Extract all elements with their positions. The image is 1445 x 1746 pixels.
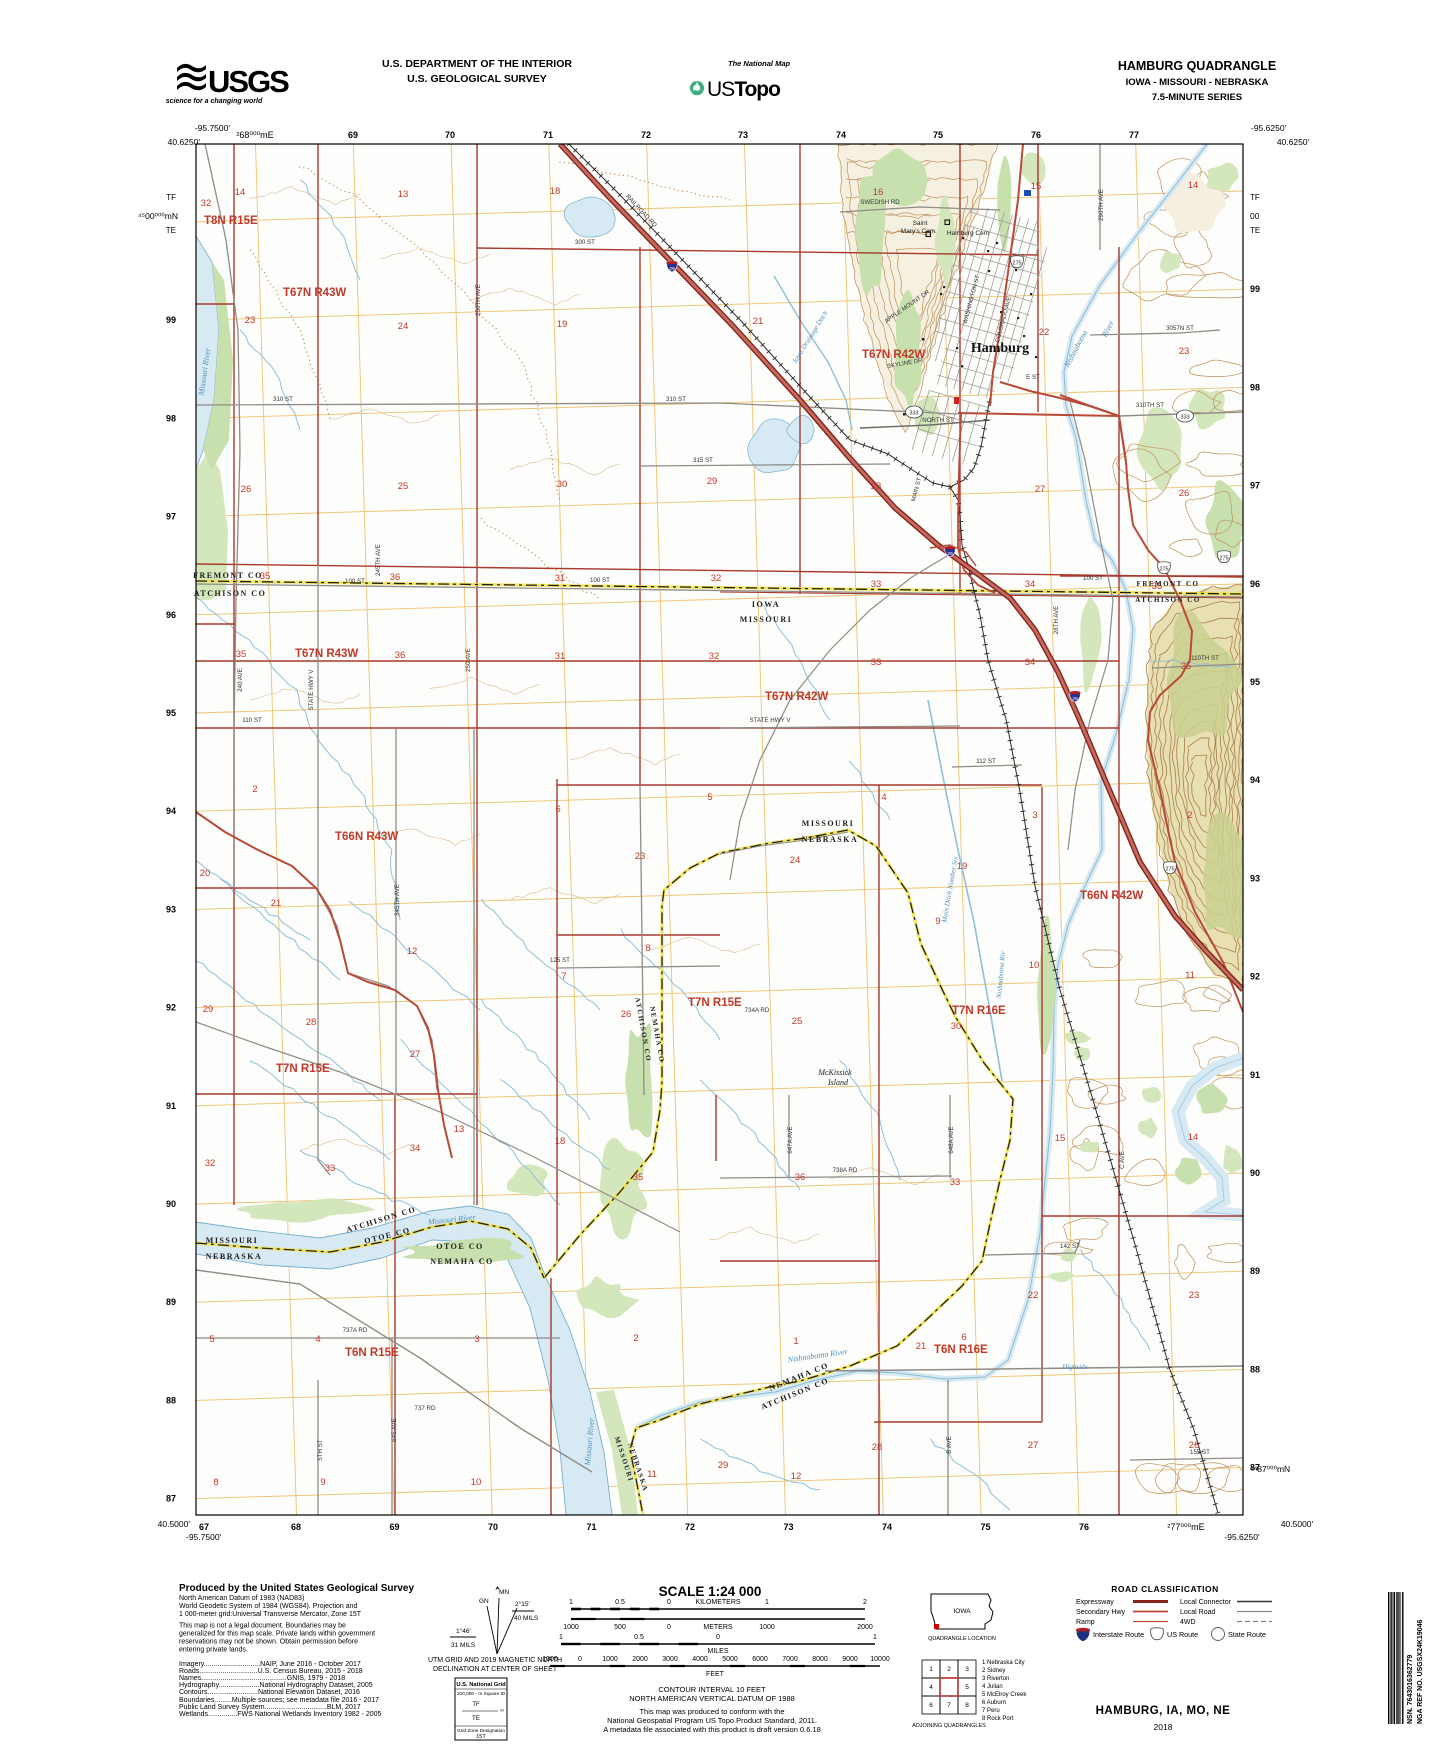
svg-text:94: 94 xyxy=(166,806,176,816)
svg-text:645 AVE: 645 AVE xyxy=(391,1418,398,1442)
svg-text:2000: 2000 xyxy=(632,1656,648,1663)
svg-text:275: 275 xyxy=(1012,260,1021,266)
svg-text:8: 8 xyxy=(965,1702,969,1709)
svg-text:T7N R15E: T7N R15E xyxy=(688,997,742,1009)
svg-text:OTOE CO: OTOE CO xyxy=(436,1242,483,1251)
svg-text:6: 6 xyxy=(929,1702,933,1709)
svg-text:737 RD: 737 RD xyxy=(415,1405,437,1412)
svg-text:74: 74 xyxy=(882,1522,892,1532)
svg-text:State Route: State Route xyxy=(1228,1630,1266,1639)
svg-text:science for a changing world: science for a changing world xyxy=(166,98,263,105)
svg-text:32: 32 xyxy=(709,651,720,662)
svg-text:DECLINATION AT CENTER OF SHEET: DECLINATION AT CENTER OF SHEET xyxy=(433,1666,558,1673)
svg-text:SWEDISH RD: SWEDISH RD xyxy=(860,199,900,206)
svg-text:ADJOINING QUADRANGLES: ADJOINING QUADRANGLES xyxy=(912,1723,986,1729)
svg-text:96: 96 xyxy=(166,610,176,620)
svg-text:00: 00 xyxy=(1250,211,1260,221)
svg-text:23: 23 xyxy=(245,315,256,326)
svg-text:6000: 6000 xyxy=(752,1656,768,1663)
svg-text:27: 27 xyxy=(1035,484,1046,495)
svg-text:92: 92 xyxy=(166,1003,176,1013)
svg-text:23: 23 xyxy=(635,851,646,862)
svg-text:69: 69 xyxy=(348,130,358,140)
svg-text:MISSOURI: MISSOURI xyxy=(740,615,792,624)
svg-text:North American Datum of 1983 (: North American Datum of 1983 (NAD83) xyxy=(179,1595,304,1602)
svg-text:1000: 1000 xyxy=(563,1624,579,1631)
svg-text:9: 9 xyxy=(320,1477,325,1488)
svg-text:6: 6 xyxy=(555,804,560,815)
svg-text:21: 21 xyxy=(271,898,282,909)
svg-text:98: 98 xyxy=(166,413,176,423)
svg-text:Interstate Route: Interstate Route xyxy=(1093,1630,1144,1639)
svg-text:18: 18 xyxy=(555,1136,566,1147)
svg-text:0.5: 0.5 xyxy=(634,1634,644,1641)
svg-text:U.S. GEOLOGICAL SURVEY: U.S. GEOLOGICAL SURVEY xyxy=(407,73,547,85)
svg-text:25: 25 xyxy=(398,481,409,492)
svg-text:26: 26 xyxy=(621,1009,632,1020)
svg-text:This map was produced to confo: This map was produced to conform with th… xyxy=(639,1707,784,1716)
svg-text:1: 1 xyxy=(765,1599,769,1606)
svg-text:IOWA: IOWA xyxy=(752,600,780,609)
svg-text:250TH AVE: 250TH AVE xyxy=(475,284,482,316)
svg-text:28: 28 xyxy=(872,1442,883,1453)
svg-text:FEET: FEET xyxy=(706,1671,725,1678)
svg-text:647A AVE: 647A AVE xyxy=(787,1126,794,1153)
svg-text:TF: TF xyxy=(472,1702,480,1708)
svg-text:29: 29 xyxy=(707,476,718,487)
svg-text:Hydrography...................: Hydrography.....................National… xyxy=(179,1682,373,1689)
svg-text:13: 13 xyxy=(454,1124,465,1135)
svg-text:7.5-MINUTE SERIES: 7.5-MINUTE SERIES xyxy=(1152,92,1242,103)
svg-text:Hamburg Cem: Hamburg Cem xyxy=(947,230,989,237)
svg-text:4000: 4000 xyxy=(692,1656,708,1663)
svg-text:T6N R16E: T6N R16E xyxy=(934,1344,988,1356)
svg-text:90: 90 xyxy=(1250,1168,1260,1178)
svg-text:2: 2 xyxy=(633,1333,638,1344)
svg-text:88: 88 xyxy=(166,1395,176,1405)
svg-text:125 ST: 125 ST xyxy=(550,957,570,964)
svg-text:B AVE: B AVE xyxy=(946,1436,953,1453)
svg-text:NEBRASKA: NEBRASKA xyxy=(206,1252,262,1261)
svg-text:28: 28 xyxy=(871,481,882,492)
svg-text:97: 97 xyxy=(166,512,176,522)
svg-text:⁴⁵00⁰⁰⁰mN: ⁴⁵00⁰⁰⁰mN xyxy=(138,211,178,221)
svg-text:Public Land Survey System.....: Public Land Survey System...............… xyxy=(179,1704,361,1711)
svg-text:NEMAHA CO: NEMAHA CO xyxy=(430,1257,494,1266)
svg-text:TE: TE xyxy=(472,1716,480,1722)
svg-text:Wetlands...............FWS Nat: Wetlands...............FWS National Wetl… xyxy=(179,1711,382,1718)
svg-text:SCALE 1:24 000: SCALE 1:24 000 xyxy=(659,1584,762,1599)
svg-text:275: 275 xyxy=(1165,866,1174,872)
svg-text:92: 92 xyxy=(1250,972,1260,982)
svg-text:25: 25 xyxy=(792,1016,803,1027)
svg-text:8000: 8000 xyxy=(812,1656,828,1663)
svg-text:TE: TE xyxy=(166,226,176,235)
svg-text:US Route: US Route xyxy=(1167,1630,1198,1639)
svg-text:275: 275 xyxy=(1159,566,1168,572)
svg-text:734A RD: 734A RD xyxy=(745,1007,770,1014)
svg-text:2°15': 2°15' xyxy=(515,1600,530,1608)
svg-text:1°46': 1°46' xyxy=(456,1627,471,1635)
svg-text:310 ST: 310 ST xyxy=(666,396,686,403)
svg-text:40 MILS: 40 MILS xyxy=(514,1615,539,1622)
svg-text:737A RD: 737A RD xyxy=(343,1327,368,1334)
svg-text:13: 13 xyxy=(398,189,409,200)
svg-text:T7N R16E: T7N R16E xyxy=(952,1005,1006,1017)
svg-text:-95.6250': -95.6250' xyxy=(1251,123,1287,133)
svg-text:METERS: METERS xyxy=(703,1624,733,1631)
svg-text:0.5: 0.5 xyxy=(615,1599,625,1606)
svg-text:73: 73 xyxy=(783,1522,793,1532)
svg-text:6: 6 xyxy=(961,1332,966,1343)
svg-text:-95.6250': -95.6250' xyxy=(1224,1532,1260,1542)
svg-text:World Geodetic System of 1984: World Geodetic System of 1984 (WGS84). P… xyxy=(179,1603,358,1610)
svg-text:73: 73 xyxy=(738,130,748,140)
svg-text:100 ST: 100 ST xyxy=(590,577,610,584)
svg-text:IOWA: IOWA xyxy=(953,1608,971,1615)
svg-text:Local Connector: Local Connector xyxy=(1180,1599,1232,1606)
svg-text:-95.7500': -95.7500' xyxy=(186,1532,222,1542)
svg-text:ATCHISON CO: ATCHISON CO xyxy=(194,589,267,598)
svg-text:10000: 10000 xyxy=(870,1656,890,1663)
svg-text:96: 96 xyxy=(1250,579,1260,589)
svg-text:2: 2 xyxy=(1187,810,1192,821)
svg-text:87: 87 xyxy=(166,1494,176,1504)
svg-text:⁴⁴87⁰⁰⁰mN: ⁴⁴87⁰⁰⁰mN xyxy=(1250,1464,1290,1474)
svg-text:Contours......................: Contours..........................Nation… xyxy=(179,1689,360,1696)
svg-text:95: 95 xyxy=(1250,677,1260,687)
svg-text:30: 30 xyxy=(951,1021,962,1032)
svg-text:generalized for this map scale: generalized for this map scale. Private … xyxy=(179,1631,375,1638)
svg-text:36: 36 xyxy=(795,1172,806,1183)
svg-text:110 ST: 110 ST xyxy=(242,717,262,724)
svg-text:Names.........................: Names...................................… xyxy=(179,1675,345,1682)
svg-text:75: 75 xyxy=(933,130,943,140)
svg-text:Imagery.......................: Imagery.............................NAIP… xyxy=(179,1661,361,1668)
svg-text:0: 0 xyxy=(716,1634,720,1641)
svg-text:24: 24 xyxy=(398,321,409,332)
svg-text:1 Nebraska City: 1 Nebraska City xyxy=(982,1660,1025,1666)
svg-text:4: 4 xyxy=(315,1334,320,1345)
svg-text:NORTH AMERICAN VERTICAL DATUM: NORTH AMERICAN VERTICAL DATUM OF 1988 xyxy=(629,1694,795,1703)
svg-text:34: 34 xyxy=(1025,657,1036,668)
svg-text:-95.7500': -95.7500' xyxy=(195,123,231,133)
svg-text:32: 32 xyxy=(201,198,212,209)
svg-text:U.S. DEPARTMENT OF THE INTERIO: U.S. DEPARTMENT OF THE INTERIOR xyxy=(382,58,572,70)
svg-text:69: 69 xyxy=(389,1522,399,1532)
svg-text:14: 14 xyxy=(1188,180,1199,191)
svg-text:5: 5 xyxy=(209,1334,214,1345)
svg-text:2018: 2018 xyxy=(1154,1722,1173,1732)
svg-text:3: 3 xyxy=(474,1334,479,1345)
svg-text:T66N R43W: T66N R43W xyxy=(335,831,398,843)
svg-text:5 McElroy Creek: 5 McElroy Creek xyxy=(982,1692,1027,1698)
svg-text:32: 32 xyxy=(205,1158,216,1169)
svg-text:5: 5 xyxy=(965,1684,969,1691)
svg-text:TF: TF xyxy=(166,193,176,202)
svg-text:2 Sidney: 2 Sidney xyxy=(982,1668,1005,1674)
svg-text:110TH ST: 110TH ST xyxy=(1191,655,1219,662)
svg-text:0: 0 xyxy=(578,1656,582,1663)
svg-text:NSN. 7643016362779: NSN. 7643016362779 xyxy=(1407,1655,1414,1724)
svg-text:STATE HWY V: STATE HWY V xyxy=(308,669,315,711)
svg-text:310 ST: 310 ST xyxy=(273,396,293,403)
svg-text:93: 93 xyxy=(166,904,176,914)
svg-text:290TH AVE: 290TH AVE xyxy=(1098,189,1105,221)
svg-text:275: 275 xyxy=(1219,555,1228,561)
svg-text:72: 72 xyxy=(641,130,651,140)
svg-text:McKissick: McKissick xyxy=(817,1068,852,1077)
svg-text:E ST: E ST xyxy=(1026,374,1040,381)
svg-text:12: 12 xyxy=(791,1471,802,1482)
svg-text:300 ST: 300 ST xyxy=(575,239,595,246)
svg-text:100 ST: 100 ST xyxy=(345,578,365,585)
svg-text:24: 24 xyxy=(790,855,801,866)
svg-text:29: 29 xyxy=(669,266,675,272)
svg-text:T66N R42W: T66N R42W xyxy=(1080,890,1143,902)
svg-text:1: 1 xyxy=(793,1336,798,1347)
svg-text:250 AVE: 250 AVE xyxy=(465,648,472,672)
svg-text:14: 14 xyxy=(235,187,246,198)
svg-text:23: 23 xyxy=(1179,346,1190,357)
svg-text:15: 15 xyxy=(1055,1133,1066,1144)
svg-text:QUADRANGLE LOCATION: QUADRANGLE LOCATION xyxy=(928,1636,996,1642)
svg-text:112 ST: 112 ST xyxy=(976,758,996,765)
svg-text:67: 67 xyxy=(199,1522,209,1532)
svg-text:4 Julian: 4 Julian xyxy=(982,1684,1003,1690)
svg-text:32: 32 xyxy=(711,573,722,584)
svg-text:²68⁰⁰⁰mE: ²68⁰⁰⁰mE xyxy=(236,130,273,140)
svg-text:30: 30 xyxy=(557,479,568,490)
svg-text:FREMONT CO: FREMONT CO xyxy=(1137,580,1200,588)
svg-text:KILOMETERS: KILOMETERS xyxy=(695,1599,740,1606)
svg-text:333: 333 xyxy=(1180,414,1189,420)
svg-text:3: 3 xyxy=(965,1666,969,1673)
svg-text:310TH ST: 310TH ST xyxy=(1136,402,1164,409)
svg-text:1: 1 xyxy=(569,1599,573,1606)
svg-text:GN: GN xyxy=(479,1598,489,1605)
svg-text:7 Peru: 7 Peru xyxy=(982,1708,1000,1714)
svg-text:142 ST: 142 ST xyxy=(1060,1243,1080,1250)
svg-text:USTopo: USTopo xyxy=(707,78,780,101)
svg-text:33: 33 xyxy=(871,579,882,590)
svg-text:34: 34 xyxy=(410,1143,421,1154)
svg-text:26: 26 xyxy=(1179,488,1190,499)
svg-text:FREMONT CO: FREMONT CO xyxy=(193,571,263,580)
svg-text:4: 4 xyxy=(881,792,886,803)
svg-text:4WD: 4WD xyxy=(1180,1619,1196,1626)
svg-text:12: 12 xyxy=(407,946,418,957)
svg-text:5000: 5000 xyxy=(722,1656,738,1663)
svg-text:93: 93 xyxy=(1250,873,1260,883)
svg-text:7: 7 xyxy=(561,971,566,982)
svg-text:Produced by the United States: Produced by the United States Geological… xyxy=(179,1583,414,1594)
svg-text:89: 89 xyxy=(166,1297,176,1307)
svg-text:29: 29 xyxy=(1072,696,1078,702)
svg-text:22: 22 xyxy=(1028,1290,1039,1301)
svg-text:²77⁰⁰⁰mE: ²77⁰⁰⁰mE xyxy=(1167,1522,1204,1532)
svg-text:23: 23 xyxy=(1189,1290,1200,1301)
svg-text:89: 89 xyxy=(1250,1266,1260,1276)
svg-text:14: 14 xyxy=(1188,1132,1199,1143)
svg-text:28TH AVE: 28TH AVE xyxy=(1053,606,1060,634)
svg-text:500: 500 xyxy=(614,1624,626,1631)
svg-text:22: 22 xyxy=(1039,327,1050,338)
svg-text:NORTH ST: NORTH ST xyxy=(922,417,954,424)
svg-text:19: 19 xyxy=(557,319,568,330)
svg-text:3: 3 xyxy=(1032,810,1037,821)
svg-text:Highside: Highside xyxy=(1061,1363,1087,1371)
svg-text:33: 33 xyxy=(950,1177,961,1188)
svg-text:6 Auburn: 6 Auburn xyxy=(982,1700,1006,1706)
svg-text:CONTOUR INTERVAL 10 FEET: CONTOUR INTERVAL 10 FEET xyxy=(658,1685,766,1694)
svg-text:STATE HWY V: STATE HWY V xyxy=(750,717,792,724)
svg-text:7000: 7000 xyxy=(782,1656,798,1663)
svg-text:2000: 2000 xyxy=(857,1624,873,1631)
svg-text:36: 36 xyxy=(390,572,401,583)
svg-text:10: 10 xyxy=(471,1477,482,1488)
svg-text:7: 7 xyxy=(947,1702,951,1709)
svg-text:21: 21 xyxy=(916,1341,927,1352)
svg-text:15: 15 xyxy=(1031,181,1042,192)
svg-text:3000: 3000 xyxy=(662,1656,678,1663)
svg-text:Saint: Saint xyxy=(913,220,928,227)
svg-text:1: 1 xyxy=(929,1666,933,1673)
svg-text:MISSOURI: MISSOURI xyxy=(206,1236,258,1245)
svg-text:31 MILS: 31 MILS xyxy=(451,1642,476,1649)
svg-text:71: 71 xyxy=(586,1522,596,1532)
svg-text:31: 31 xyxy=(555,651,566,662)
svg-text:2: 2 xyxy=(252,784,257,795)
svg-text:40.5000': 40.5000' xyxy=(158,1519,191,1529)
svg-text:This map is not a legal docume: This map is not a legal document. Bounda… xyxy=(179,1623,346,1630)
svg-text:2: 2 xyxy=(863,1599,867,1606)
svg-text:0: 0 xyxy=(667,1624,671,1631)
svg-text:333: 333 xyxy=(909,410,918,416)
svg-text:26: 26 xyxy=(241,484,252,495)
svg-text:MN: MN xyxy=(499,1589,509,1596)
svg-text:HAMBURG QUADRANGLE: HAMBURG QUADRANGLE xyxy=(1118,59,1276,73)
svg-text:4: 4 xyxy=(929,1684,933,1691)
svg-text:97: 97 xyxy=(1250,481,1260,491)
svg-text:Boundaries.........Multiple so: Boundaries.........Multiple sources; see… xyxy=(179,1697,379,1704)
svg-text:IOWA - MISSOURI - NEBRASKA: IOWA - MISSOURI - NEBRASKA xyxy=(1126,77,1269,88)
svg-text:8 Rock Port: 8 Rock Port xyxy=(982,1716,1014,1722)
svg-text:T6N R15E: T6N R15E xyxy=(345,1347,399,1359)
svg-text:MISSOURI: MISSOURI xyxy=(802,819,854,828)
svg-text:99: 99 xyxy=(166,315,176,325)
svg-text:16: 16 xyxy=(873,187,884,198)
svg-text:70: 70 xyxy=(488,1522,498,1532)
svg-text:T67N R43W: T67N R43W xyxy=(295,648,358,660)
svg-text:27: 27 xyxy=(1028,1440,1039,1451)
svg-text:2: 2 xyxy=(947,1666,951,1673)
svg-text:18: 18 xyxy=(550,186,561,197)
svg-text:A metadata file associated wit: A metadata file associated with this pro… xyxy=(603,1725,821,1734)
svg-text:15T: 15T xyxy=(476,1734,486,1740)
svg-text:345TH AVE: 345TH AVE xyxy=(394,884,401,916)
svg-text:ROAD CLASSIFICATION: ROAD CLASSIFICATION xyxy=(1111,1584,1219,1594)
svg-text:11: 11 xyxy=(1185,970,1195,981)
svg-text:315 ST: 315 ST xyxy=(693,457,713,464)
svg-text:USGS: USGS xyxy=(208,64,289,99)
svg-text:77: 77 xyxy=(1129,130,1139,140)
svg-text:70: 70 xyxy=(445,130,455,140)
svg-text:738A RD: 738A RD xyxy=(833,1167,858,1174)
svg-text:Roads.........................: Roads..............................U.S. … xyxy=(179,1668,363,1675)
svg-text:3057N ST: 3057N ST xyxy=(1166,325,1194,332)
svg-text:1000: 1000 xyxy=(602,1656,618,1663)
svg-text:35: 35 xyxy=(633,1172,644,1183)
svg-text:29: 29 xyxy=(203,1004,214,1015)
svg-text:Secondary Hwy: Secondary Hwy xyxy=(1076,1609,1126,1616)
svg-text:entering private lands.: entering private lands. xyxy=(179,1647,248,1654)
svg-text:27: 27 xyxy=(410,1049,421,1060)
svg-text:5: 5 xyxy=(707,792,712,803)
svg-text:76: 76 xyxy=(1079,1522,1089,1532)
svg-text:21: 21 xyxy=(753,316,764,327)
svg-text:240 AVE: 240 AVE xyxy=(237,668,244,692)
svg-text:35: 35 xyxy=(236,649,247,660)
svg-text:20: 20 xyxy=(200,868,211,879)
svg-text:Island: Island xyxy=(827,1078,849,1087)
svg-text:88: 88 xyxy=(1250,1364,1260,1374)
svg-text:100 ST: 100 ST xyxy=(1083,575,1103,582)
svg-text:Ramp: Ramp xyxy=(1076,1619,1095,1626)
svg-text:33: 33 xyxy=(325,1163,336,1174)
svg-text:MILES: MILES xyxy=(707,1648,728,1655)
svg-text:U.S. National Grid: U.S. National Grid xyxy=(456,1682,506,1688)
svg-text:3 Riverton: 3 Riverton xyxy=(982,1676,1009,1682)
svg-text:HAMBURG, IA, MO, NE: HAMBURG, IA, MO, NE xyxy=(1096,1705,1231,1717)
svg-text:98: 98 xyxy=(1250,382,1260,392)
svg-text:0: 0 xyxy=(667,1599,671,1606)
svg-text:90: 90 xyxy=(166,1199,176,1209)
svg-text:T8N R15E: T8N R15E xyxy=(204,215,258,227)
svg-text:T7N R15E: T7N R15E xyxy=(276,1063,330,1075)
svg-text:1: 1 xyxy=(559,1634,563,1641)
svg-text:36: 36 xyxy=(395,650,406,661)
svg-text:72: 72 xyxy=(685,1522,695,1532)
svg-text:1: 1 xyxy=(873,1634,877,1641)
svg-text:95: 95 xyxy=(166,708,176,718)
svg-text:74: 74 xyxy=(836,130,846,140)
svg-text:The National Map: The National Map xyxy=(728,59,791,68)
svg-text:8: 8 xyxy=(645,943,650,954)
svg-text:91: 91 xyxy=(166,1101,176,1111)
svg-text:40.6250': 40.6250' xyxy=(1277,137,1310,147)
svg-text:75: 75 xyxy=(980,1522,990,1532)
svg-text:100,000 - m Square ID: 100,000 - m Square ID xyxy=(457,1691,506,1697)
svg-text:T67N R43W: T67N R43W xyxy=(283,287,346,299)
svg-text:40.5000': 40.5000' xyxy=(1281,1519,1314,1529)
svg-text:T67N R42W: T67N R42W xyxy=(765,691,828,703)
svg-text:648A AVE: 648A AVE xyxy=(948,1126,955,1153)
svg-text:34: 34 xyxy=(1025,579,1036,590)
svg-text:1000: 1000 xyxy=(759,1624,775,1631)
svg-text:29: 29 xyxy=(947,551,953,557)
svg-text:1000: 1000 xyxy=(542,1656,558,1663)
svg-text:Expressway: Expressway xyxy=(1076,1599,1114,1606)
svg-text:245TH AVE: 245TH AVE xyxy=(375,544,382,576)
svg-text:10: 10 xyxy=(1029,960,1040,971)
svg-text:1 000-meter grid:Universal Tra: 1 000-meter grid:Universal Transverse Me… xyxy=(179,1611,362,1618)
svg-text:9000: 9000 xyxy=(842,1656,858,1663)
svg-text:C AVE: C AVE xyxy=(1119,1151,1126,1169)
svg-text:5TH ST: 5TH ST xyxy=(317,1439,324,1461)
svg-text:NGA REF NO. USGSX24K19046: NGA REF NO. USGSX24K19046 xyxy=(1417,1620,1424,1724)
svg-text:28: 28 xyxy=(306,1017,317,1028)
